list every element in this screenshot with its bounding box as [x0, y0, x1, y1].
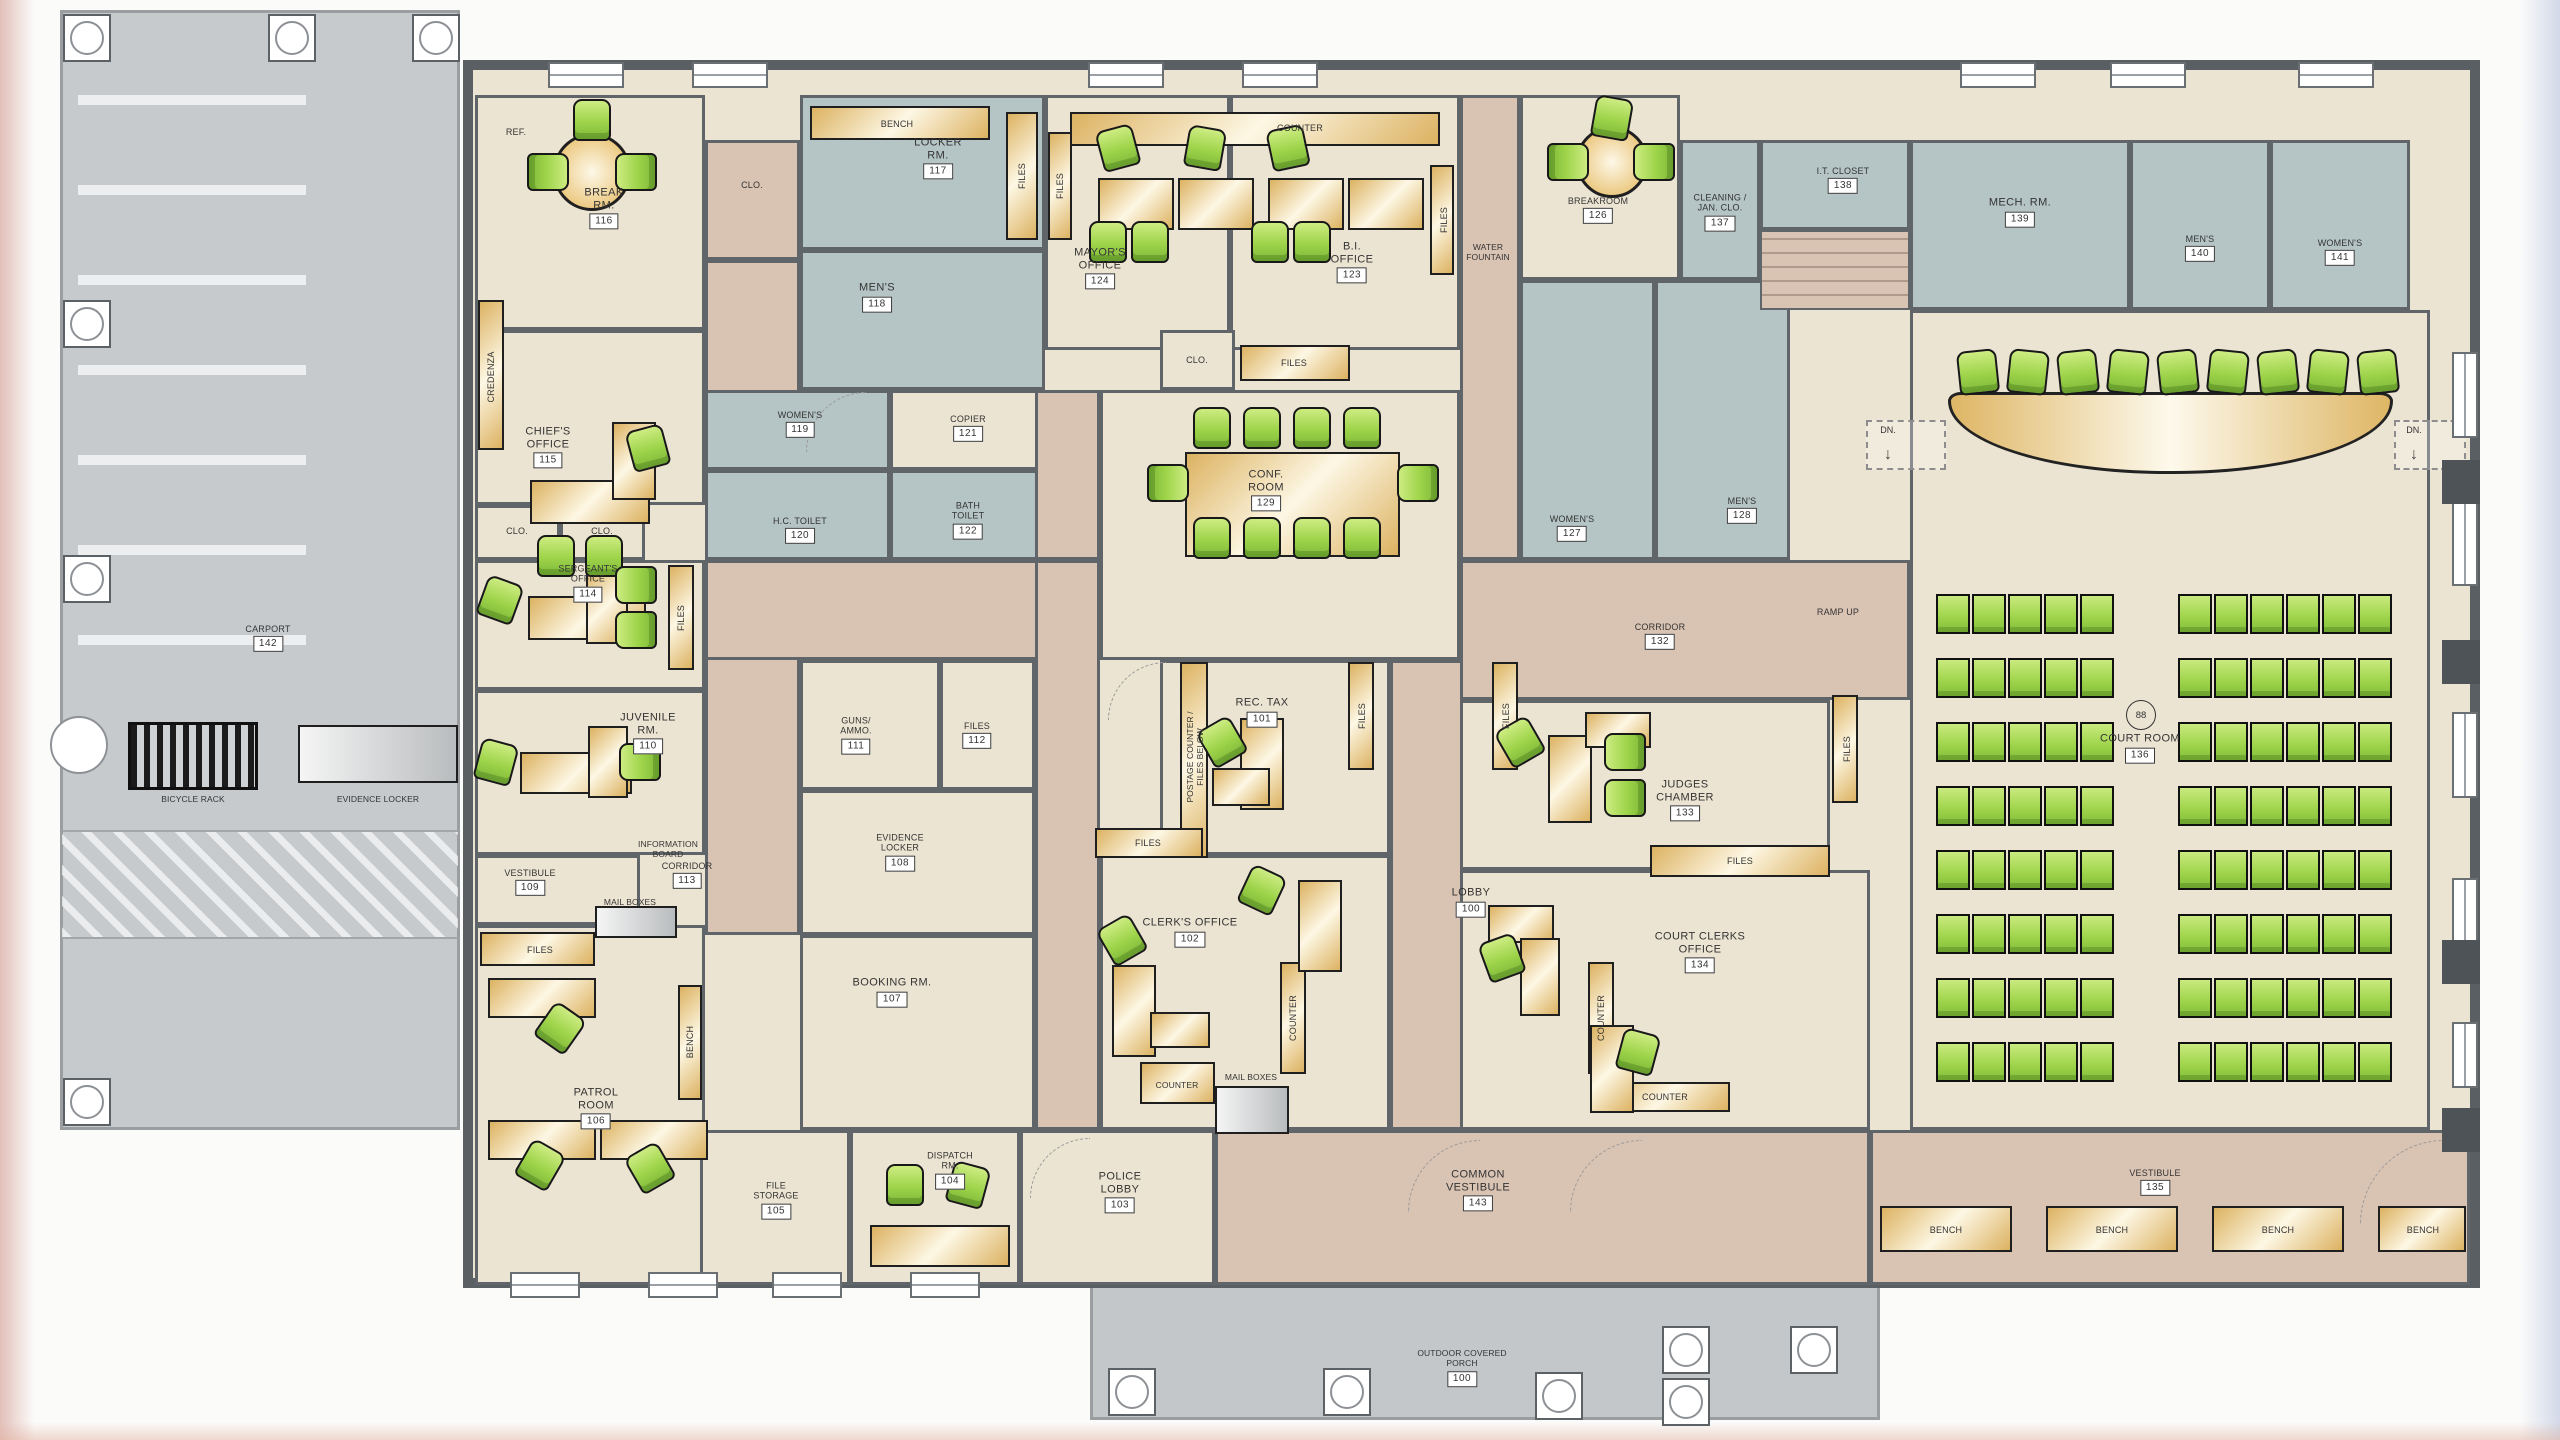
desk	[1548, 735, 1592, 823]
room-common-vestibule-label-text: COMMON VESTIBULE	[1446, 1168, 1510, 1193]
gallery-seat	[2044, 786, 2078, 826]
dais-chair	[2156, 348, 2200, 396]
files-label-text: FILES	[1842, 736, 1852, 762]
room-womens-119-label: WOMEN'S119	[778, 410, 823, 438]
corridor-label: CORRIDOR113	[662, 861, 713, 889]
window	[2452, 500, 2478, 586]
room-clo-conf-label-text: CLO.	[1186, 355, 1208, 365]
carport-label-number: 142	[253, 636, 283, 652]
chair	[1604, 779, 1646, 817]
desk	[870, 1225, 1010, 1267]
room-mens-140-label: MEN'S140	[2185, 234, 2215, 262]
room-court-clerks-office-label: COURT CLERKS OFFICE134	[1655, 930, 1746, 973]
bench-label-text: BENCH	[881, 119, 914, 129]
room-bath-toilet-label: BATH TOILET122	[952, 501, 985, 540]
chair	[1251, 221, 1289, 263]
room-patrol-room-label-text: PATROL ROOM	[574, 1086, 619, 1111]
room-file-storage-label-text: FILE STORAGE	[753, 1181, 798, 1201]
room-chiefs-office-label-text: CHIEF'S OFFICE	[525, 425, 570, 450]
parking-stripe	[78, 545, 306, 555]
chair	[1633, 143, 1675, 181]
files-label-text: FILES	[1017, 163, 1027, 189]
gallery-seat	[2008, 658, 2042, 698]
room-police-lobby-label: POLICE LOBBY103	[1099, 1170, 1142, 1213]
room-break-rm-label: BREAK RM.116	[584, 186, 623, 229]
gallery-seat	[2178, 1042, 2212, 1082]
desk	[1150, 1012, 1210, 1048]
parking-stripe	[78, 365, 306, 375]
room-locker-rm-label-number: 117	[923, 164, 952, 180]
site-column	[63, 1078, 111, 1126]
chair	[1243, 407, 1281, 449]
room-clo-top-label-text: CLO.	[741, 180, 763, 190]
room-mech-rm-label: MECH. RM.139	[1989, 197, 2051, 228]
pilaster	[2442, 460, 2480, 504]
room-booking-rm	[800, 935, 1035, 1130]
corridor-label-text: CORRIDOR	[1635, 622, 1686, 632]
pilaster	[2442, 940, 2480, 984]
gallery-seat	[2080, 594, 2114, 634]
files-label: FILES	[676, 605, 686, 631]
desk	[1212, 768, 1270, 806]
chair	[1193, 407, 1231, 449]
bench-label-text: BENCH	[2096, 1225, 2129, 1235]
chair	[615, 611, 657, 649]
gallery-seat	[2250, 722, 2284, 762]
gallery-seat	[2358, 722, 2392, 762]
gallery-seat	[2250, 850, 2284, 890]
room-copier-121-label: COPIER121	[950, 414, 986, 442]
gallery-seat	[2214, 1042, 2248, 1082]
gallery-seat	[2322, 914, 2356, 954]
stair-area	[1760, 230, 1910, 310]
counter-label: COUNTER	[1156, 1081, 1199, 1091]
room-it-closet-label-number: 138	[1828, 178, 1858, 194]
gallery-seat	[2008, 978, 2042, 1018]
desk	[1348, 178, 1424, 230]
room-court-clerks-office-label-text: COURT CLERKS OFFICE	[1655, 930, 1746, 955]
gallery-seat	[2214, 658, 2248, 698]
gallery-seat	[2008, 786, 2042, 826]
gallery-seat	[2008, 722, 2042, 762]
counter-label: COUNTER	[1642, 1092, 1688, 1102]
bench-label-text: BENCH	[2262, 1225, 2295, 1235]
gallery-seat	[1936, 1042, 1970, 1082]
room-booking-rm-label-number: 107	[877, 991, 907, 1007]
room-conf-room-label-text: CONF. ROOM	[1248, 468, 1284, 493]
ref-label: REF.	[506, 127, 526, 137]
evidence-locker-site	[298, 725, 458, 783]
gallery-seat	[2178, 722, 2212, 762]
room-judges-chamber-label-text: JUDGES CHAMBER	[1656, 778, 1714, 803]
room-mens-118-label-text: MEN'S	[859, 282, 895, 294]
room-sergeants-office-label-text: SERGEANT'S OFFICE	[558, 564, 617, 584]
bench-label: BENCH	[2096, 1225, 2129, 1235]
gallery-seat	[2358, 850, 2392, 890]
room-common-vestibule	[1215, 1130, 1870, 1285]
room-mayors-office-label: MAYOR'S OFFICE124	[1074, 246, 1126, 289]
walkway-hatch	[62, 830, 458, 939]
porch-column	[1662, 1326, 1710, 1374]
gallery-seat	[2286, 978, 2320, 1018]
gallery-seat	[2214, 594, 2248, 634]
gallery-seat	[2322, 658, 2356, 698]
room-womens-119-label-text: WOMEN'S	[778, 410, 823, 420]
room-lobby-label-number: 100	[1456, 901, 1486, 917]
gallery-seat	[1972, 786, 2006, 826]
files-label-text: FILES	[1439, 207, 1449, 233]
chair	[1397, 464, 1439, 502]
room-mens-118	[800, 250, 1045, 390]
room-court-room-label-text: COURT ROOM	[2100, 733, 2180, 745]
gallery-seat	[2008, 914, 2042, 954]
desk	[1178, 178, 1254, 230]
room-police-lobby-label-text: POLICE LOBBY	[1099, 1170, 1142, 1195]
gallery-seat	[2044, 594, 2078, 634]
window	[548, 62, 624, 88]
room-juvenile-rm-label: JUVENILE RM.110	[620, 711, 676, 754]
window	[648, 1272, 718, 1298]
gallery-seat	[2322, 722, 2356, 762]
room-clo-conf-label: CLO.	[1186, 355, 1208, 365]
gallery-seat	[2178, 594, 2212, 634]
room-hc-toilet-label-number: 120	[785, 528, 815, 544]
chair	[1131, 221, 1169, 263]
mail-boxes-label: MAIL BOXES	[1225, 1073, 1277, 1083]
gallery-seat	[2080, 914, 2114, 954]
water-fountain-label-text: WATER FOUNTAIN	[1466, 242, 1510, 262]
gallery-seat	[2322, 1042, 2356, 1082]
room-court-room-label-number: 136	[2125, 747, 2155, 763]
chair	[1547, 143, 1589, 181]
gallery-seat	[2044, 850, 2078, 890]
room-breakroom-126-label-number: 126	[1583, 208, 1613, 224]
room-bi-office-label-text: B.I. OFFICE	[1331, 240, 1374, 265]
ramp-up-label: RAMP UP	[1817, 607, 1859, 617]
gallery-seat	[2358, 1042, 2392, 1082]
room-dispatch-rm-label-text: DISPATCH RM.	[927, 1151, 973, 1171]
room-police-lobby-label-number: 103	[1105, 1198, 1135, 1214]
postage-counter-label: POSTAGE COUNTER / FILES BELOW	[1186, 711, 1206, 802]
room-files-112-label-number: 112	[962, 733, 991, 749]
gallery-seat	[2358, 914, 2392, 954]
room-vestibule-135-label: VESTIBULE135	[2129, 1168, 2180, 1196]
counter-label-text: COUNTER	[1596, 995, 1606, 1041]
porch-column	[1662, 1378, 1710, 1426]
chair	[527, 153, 569, 191]
gallery-seat	[2358, 978, 2392, 1018]
room-files-112-label-text: FILES	[964, 721, 990, 731]
room-bi-office-label: B.I. OFFICE123	[1331, 240, 1374, 283]
counter-label: COUNTER	[1288, 995, 1298, 1041]
room-womens-141-label: WOMEN'S141	[2318, 238, 2363, 266]
gallery-seat	[1972, 1042, 2006, 1082]
gallery-seat	[2080, 786, 2114, 826]
room-break-rm-label-text: BREAK RM.	[584, 186, 623, 211]
window	[1242, 62, 1318, 88]
gallery-seat	[2044, 722, 2078, 762]
room-womens-141-label-text: WOMEN'S	[2318, 238, 2363, 248]
files-label-text: FILES	[1501, 703, 1511, 729]
room-womens-127-label-text: WOMEN'S	[1550, 514, 1595, 524]
gallery-seat	[2178, 786, 2212, 826]
gallery-seat	[2250, 594, 2284, 634]
files-label: FILES	[1055, 173, 1065, 199]
room-womens-141	[2270, 140, 2410, 310]
room-dispatch-rm-label: DISPATCH RM.104	[927, 1151, 973, 1190]
gallery-seat	[2044, 658, 2078, 698]
room-clerks-office-label: CLERK'S OFFICE102	[1142, 917, 1237, 948]
chair	[1147, 464, 1189, 502]
gallery-seat	[2178, 658, 2212, 698]
dn-label: DN.	[1880, 425, 1896, 435]
room-copier-121-label-text: COPIER	[950, 414, 986, 424]
counter-label: COUNTER	[1277, 123, 1323, 133]
gallery-seat	[2322, 978, 2356, 1018]
information-board-label-text: INFORMATION BOARD	[638, 839, 698, 859]
desk	[1520, 938, 1560, 1016]
window	[1960, 62, 2036, 88]
down-arrow-icon: ↓	[1884, 446, 1892, 464]
parking-stripe	[78, 455, 306, 465]
files-label-text: FILES	[1135, 838, 1161, 848]
bench-label: BENCH	[2407, 1225, 2440, 1235]
room-judges-chamber-label: JUDGES CHAMBER133	[1656, 778, 1714, 821]
gallery-seat	[2286, 914, 2320, 954]
down-arrow-icon: ↓	[2410, 446, 2418, 464]
gallery-seat	[2080, 978, 2114, 1018]
room-guns-ammo-label-number: 111	[842, 738, 871, 754]
site-column	[63, 555, 111, 603]
carport-label-text: CARPORT	[245, 624, 290, 634]
gallery-seat	[2214, 978, 2248, 1018]
mail-boxes-label-text: MAIL BOXES	[1225, 1072, 1277, 1082]
room-common-vestibule-label-number: 143	[1463, 1196, 1493, 1212]
chair	[615, 566, 657, 604]
room-clo-top-label: CLO.	[741, 180, 763, 190]
room-mens-128-label-text: MEN'S	[1728, 496, 1757, 506]
dn-label: DN.	[2406, 425, 2422, 435]
files-label-text: FILES	[1055, 173, 1065, 199]
ref-label-text: REF.	[506, 127, 526, 137]
gallery-seat	[1972, 978, 2006, 1018]
room-cleaning-137-label: CLEANING / JAN. CLO.137	[1693, 193, 1746, 232]
parking-stripe	[78, 95, 306, 105]
corridor-label-number: 132	[1645, 634, 1675, 650]
evidence-locker-site-label-text: EVIDENCE LOCKER	[337, 794, 419, 804]
room-mens-140-label-number: 140	[2185, 246, 2215, 262]
room-file-storage-label-number: 105	[761, 1203, 791, 1219]
bench-label: BENCH	[1930, 1225, 1963, 1235]
gallery-seat	[1936, 850, 1970, 890]
room-breakroom-126-label-text: BREAKROOM	[1568, 196, 1628, 206]
room-bi-office-label-number: 123	[1337, 268, 1367, 284]
room-it-closet-label: I.T. CLOSET138	[1817, 166, 1870, 194]
room-vestibule-109-label: VESTIBULE109	[504, 868, 555, 896]
room-conf-room-label: CONF. ROOM129	[1248, 468, 1284, 511]
room-vestibule-135-label-text: VESTIBULE	[2129, 1168, 2180, 1178]
room-clo-1-label: CLO.	[506, 526, 528, 536]
room-mayors-office-label-number: 124	[1085, 274, 1115, 290]
bicycle-rack-label: BICYCLE RACK	[161, 795, 225, 805]
site-column-round	[50, 716, 108, 774]
room-mens-128	[1655, 280, 1790, 560]
room-booking-rm-label-text: BOOKING RM.	[853, 977, 932, 989]
chair	[1183, 124, 1228, 172]
chair	[573, 99, 611, 141]
gallery-seat	[2286, 786, 2320, 826]
room-juvenile-rm-label-text: JUVENILE RM.	[620, 711, 676, 736]
room-mens-128-label: MEN'S128	[1727, 496, 1757, 524]
postage-counter-label-text: POSTAGE COUNTER / FILES BELOW	[1185, 711, 1205, 802]
files-label-text: FILES	[1357, 703, 1367, 729]
corridor-label: CORRIDOR132	[1635, 622, 1686, 650]
room-guns-ammo-label: GUNS/ AMMO.111	[840, 716, 872, 755]
gallery-seat	[2008, 850, 2042, 890]
gallery-seat	[1972, 658, 2006, 698]
room-hc-toilet-label: H.C. TOILET120	[773, 516, 827, 544]
window	[2452, 712, 2478, 798]
files-label-text: FILES	[1727, 856, 1753, 866]
room-evidence-locker-108-label: EVIDENCE LOCKER108	[876, 833, 924, 872]
room-clo-2-label-text: CLO.	[591, 526, 613, 536]
gallery-seat	[1972, 850, 2006, 890]
bicycle-rack-label-text: BICYCLE RACK	[161, 794, 225, 804]
room-clo-top	[705, 140, 800, 260]
parking-stripe	[78, 185, 306, 195]
room-mens-128-label-number: 128	[1727, 508, 1757, 524]
gallery-seat	[2286, 594, 2320, 634]
room-womens-119-label-number: 119	[785, 422, 814, 438]
site-column	[63, 14, 111, 62]
room-hc-toilet-label-text: H.C. TOILET	[773, 516, 827, 526]
files-label: FILES	[1727, 856, 1753, 866]
room-clerks-office-label-text: CLERK'S OFFICE	[1142, 917, 1237, 929]
gallery-seat	[2358, 658, 2392, 698]
room-clo-1-label-text: CLO.	[506, 526, 528, 536]
ramp-dn	[1866, 420, 1946, 470]
chair	[1343, 407, 1381, 449]
room-womens-127-label: WOMEN'S127	[1550, 514, 1595, 542]
gallery-seat	[2322, 594, 2356, 634]
seat-count-badge: 88	[2126, 700, 2156, 730]
ramp-up-label-text: RAMP UP	[1817, 607, 1859, 617]
room-bath-toilet-label-number: 122	[953, 523, 983, 539]
gallery-seat	[2044, 1042, 2078, 1082]
room-cleaning-137-label-number: 137	[1705, 215, 1735, 231]
bench-label-text: BENCH	[685, 1026, 695, 1059]
room-guns-ammo-label-text: GUNS/ AMMO.	[840, 716, 872, 736]
chair	[1343, 517, 1381, 559]
gallery-seat	[2250, 914, 2284, 954]
room-locker-rm-label-text: LOCKER RM.	[914, 136, 962, 161]
gallery-seat	[1972, 594, 2006, 634]
gallery-seat	[1972, 722, 2006, 762]
room-corridor-conf	[1035, 390, 1100, 560]
gallery-seat	[1936, 594, 1970, 634]
evidence-locker-site-label: EVIDENCE LOCKER	[337, 795, 419, 805]
files-label-text: FILES	[676, 605, 686, 631]
files-label: FILES	[1357, 703, 1367, 729]
porch-column	[1790, 1326, 1838, 1374]
counter-label-text: COUNTER	[1642, 1092, 1688, 1102]
floor-plan: CARPORT142BICYCLE RACKEVIDENCE LOCKEROUT…	[0, 0, 2560, 1440]
room-mens-118-label: MEN'S118	[859, 282, 895, 313]
carport-area	[60, 10, 460, 1130]
pilaster	[2442, 1108, 2480, 1152]
mail-boxes-label: MAIL BOXES	[604, 898, 656, 908]
gallery-seat	[2358, 786, 2392, 826]
files-label: FILES	[1501, 703, 1511, 729]
room-court-room-label: COURT ROOM136	[2100, 733, 2180, 764]
porch-column	[1323, 1368, 1371, 1416]
backdrop-right	[2520, 0, 2560, 1440]
window	[2452, 352, 2478, 438]
counter-label: COUNTER	[1596, 995, 1606, 1041]
gallery-seat	[2008, 594, 2042, 634]
room-patrol-room-label-number: 106	[581, 1114, 611, 1130]
chair	[1590, 94, 1635, 142]
site-column	[268, 14, 316, 62]
room-dispatch-rm-label-number: 104	[935, 1173, 965, 1189]
room-conf-room-label-number: 129	[1251, 496, 1281, 512]
gallery-seat	[2178, 850, 2212, 890]
chair	[615, 153, 657, 191]
chair	[1604, 733, 1646, 771]
gallery-seat	[2286, 850, 2320, 890]
room-chiefs-office-label: CHIEF'S OFFICE115	[525, 425, 570, 468]
room-bath-toilet-label-text: BATH TOILET	[952, 501, 985, 521]
parking-stripe	[78, 275, 306, 285]
room-clo-2-label: CLO.	[591, 526, 613, 536]
desk	[1298, 880, 1342, 972]
room-rec-tax-label-text: REC. TAX	[1236, 697, 1289, 709]
room-common-vestibule-label: COMMON VESTIBULE143	[1446, 1168, 1510, 1211]
gallery-seat	[2250, 978, 2284, 1018]
pilaster	[2442, 640, 2480, 684]
porch-column	[1535, 1372, 1583, 1420]
chair	[1243, 517, 1281, 559]
gallery-seat	[2250, 1042, 2284, 1082]
room-corridor-main	[1035, 560, 1100, 1130]
gallery-seat	[2250, 658, 2284, 698]
dais-chair	[2356, 348, 2400, 396]
gallery-seat	[2286, 722, 2320, 762]
gallery-seat	[2008, 1042, 2042, 1082]
window	[510, 1272, 580, 1298]
room-booking-rm-label: BOOKING RM.107	[853, 977, 932, 1008]
files-label-text: FILES	[527, 945, 553, 955]
room-break-rm-label-number: 116	[589, 214, 618, 230]
room-womens-127-label-number: 127	[1557, 526, 1587, 542]
dais-chair	[2106, 348, 2150, 396]
room-file-storage-label: FILE STORAGE105	[753, 1181, 798, 1220]
water-fountain-label: WATER FOUNTAIN	[1466, 243, 1510, 263]
window	[2452, 1022, 2478, 1088]
gallery-seat	[1936, 658, 1970, 698]
corridor-label-text: CORRIDOR	[662, 861, 713, 871]
gallery-seat	[2214, 786, 2248, 826]
gallery-seat	[2250, 786, 2284, 826]
information-board-label: INFORMATION BOARD	[638, 840, 698, 860]
files-label: FILES	[1439, 207, 1449, 233]
room-womens-141-label-number: 141	[2325, 250, 2355, 266]
porch-label-number: 100	[1447, 1371, 1477, 1387]
room-clerks-office-label-number: 102	[1175, 931, 1205, 947]
gallery-seat	[2044, 914, 2078, 954]
dais-chair	[2006, 348, 2050, 396]
room-juvenile-rm-label-number: 110	[633, 739, 662, 755]
